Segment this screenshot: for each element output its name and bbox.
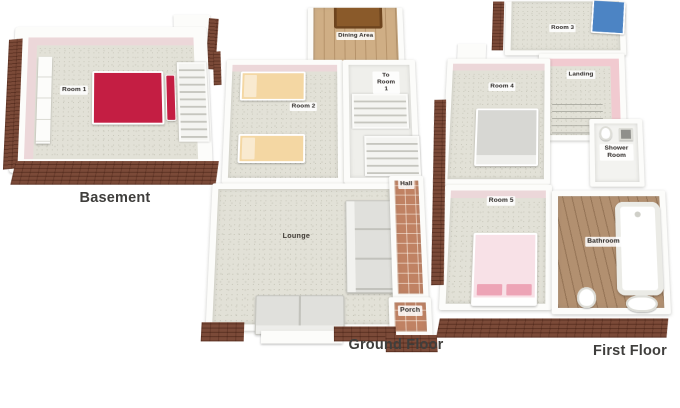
hall: [389, 176, 429, 299]
ground-stairs-upper: [352, 94, 409, 129]
room5-label: Room 5: [487, 196, 516, 206]
landing-label: Landing: [567, 70, 596, 79]
lounge-sofa-right: [345, 200, 394, 293]
basement-pink-wall-top: [28, 37, 194, 45]
basement-plan: Room 1: [4, 22, 216, 193]
room2-single-bed-2: [237, 134, 305, 163]
bathroom-label: Bathroom: [585, 237, 622, 247]
basement-caption: Basement: [48, 190, 182, 206]
ground-stairs-lower: [364, 136, 421, 176]
lounge-sofa-bottom: [255, 295, 345, 335]
dining-area-label: Dining Area: [336, 32, 375, 40]
shower-tray: [619, 128, 633, 141]
basement-brick-front: [10, 161, 218, 185]
sofa-cushions: [354, 201, 393, 292]
ground-floor-plan: Dining Area Room 2 To Room 1 Lounge Hall…: [197, 8, 443, 372]
room4-double-bed-gray: [474, 108, 538, 166]
room2-single-bed-1: [240, 72, 306, 101]
lounge-label: Lounge: [283, 233, 311, 240]
basement-bed-side-piece: [165, 75, 176, 121]
landing-pink-wall-top: [545, 59, 619, 67]
room5-double-bed-pink: [471, 233, 537, 306]
dining-table: [334, 8, 383, 29]
room4-pink-wall: [453, 64, 545, 71]
bathtub-drain: [634, 211, 640, 217]
basement-double-bed-red: [92, 71, 165, 124]
bathroom-toilet: [577, 287, 596, 308]
bed-pillow: [242, 138, 256, 160]
room3-label: Room 3: [549, 24, 576, 32]
sofa-arm: [346, 201, 355, 292]
bed-footboard: [473, 298, 535, 304]
hall-label: Hall: [398, 180, 415, 189]
room4-label: Room 4: [488, 82, 516, 91]
bed-pillow: [244, 75, 257, 97]
porch-label: Porch: [398, 306, 423, 317]
shower-room-toilet: [599, 126, 612, 140]
sofa-cushions: [256, 296, 344, 325]
basement-wardrobe: [36, 57, 53, 144]
first-brick-front: [436, 318, 668, 337]
bed-footboard: [476, 155, 536, 164]
bathtub: [615, 202, 664, 296]
ground-brick-sliver-left: [213, 51, 222, 85]
first-brick-sliver-top: [492, 2, 505, 51]
room2-label: Room 2: [290, 102, 318, 111]
room3-bed-blue: [590, 1, 625, 35]
bed-pillow: [506, 284, 531, 295]
to-room1-label: To Room 1: [372, 72, 400, 94]
room1-label: Room 1: [60, 86, 88, 95]
bathroom-sink: [626, 295, 658, 312]
basement-stairs: [177, 62, 210, 142]
shower-room-label: Shower Room: [600, 144, 634, 161]
bed-pillow: [477, 284, 503, 295]
first-brick-left: [431, 100, 446, 286]
ground-brick-stub-left: [201, 322, 245, 341]
floorplan-image: Room 1 Basement Dining Area Room 2 To Ro…: [0, 0, 680, 408]
first-floor-plan: Room 3 Landing Room 4 Shower Room Room 5…: [425, 2, 680, 364]
first-floor-caption: First Floor: [570, 343, 680, 359]
room2-pink-wall: [232, 65, 337, 72]
